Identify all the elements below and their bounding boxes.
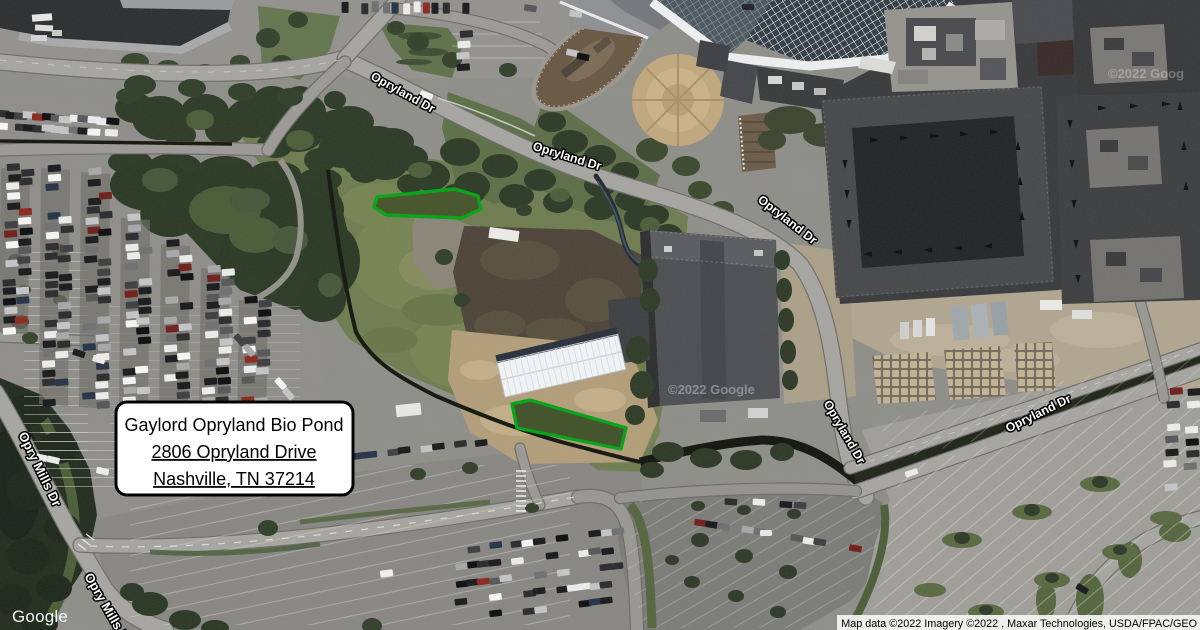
svg-text:Map data ©2022 Imagery ©2022 ,: Map data ©2022 Imagery ©2022 , Maxar Tec… [841, 618, 1197, 630]
svg-text:2806 Opryland Drive: 2806 Opryland Drive [151, 442, 316, 462]
svg-text:©2022 Google: ©2022 Google [668, 382, 755, 397]
svg-text:Nashville, TN 37214: Nashville, TN 37214 [153, 469, 315, 489]
svg-text:©2022 Goog: ©2022 Goog [1108, 66, 1184, 81]
svg-text:Google: Google [12, 607, 68, 626]
svg-text:Gaylord Opryland Bio Pond: Gaylord Opryland Bio Pond [124, 415, 343, 435]
